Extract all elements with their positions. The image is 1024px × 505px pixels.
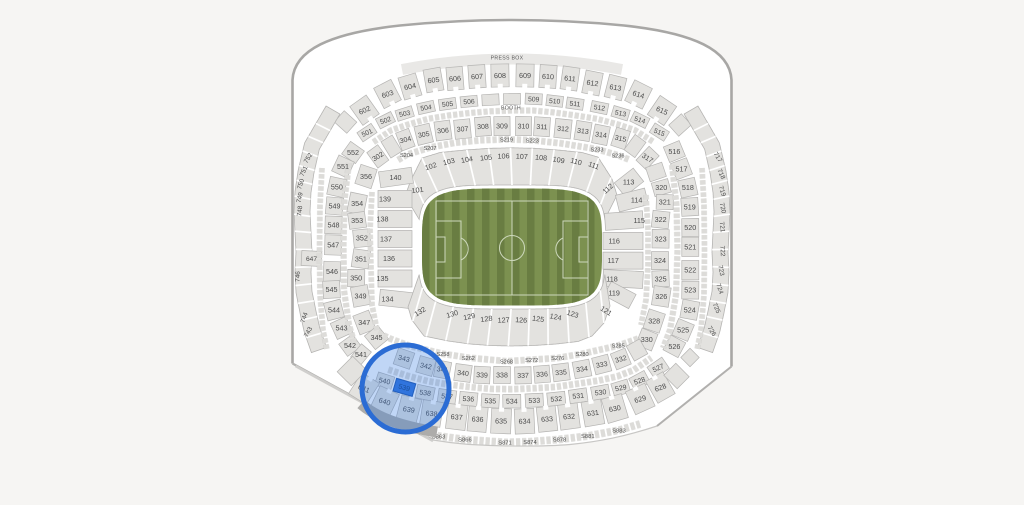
svg-text:S878: S878 [553, 438, 567, 444]
svg-text:335: 335 [555, 369, 567, 377]
svg-text:606: 606 [449, 74, 461, 84]
svg-text:345: 345 [371, 333, 383, 342]
svg-text:550: 550 [331, 183, 343, 192]
svg-text:S285: S285 [612, 344, 625, 350]
svg-text:108: 108 [535, 153, 548, 163]
svg-text:BOOTH: BOOTH [501, 106, 521, 112]
svg-text:S874: S874 [523, 440, 537, 446]
svg-text:516: 516 [668, 147, 680, 156]
svg-text:634: 634 [518, 417, 530, 426]
svg-text:105: 105 [480, 153, 493, 163]
svg-text:135: 135 [377, 274, 389, 283]
svg-text:339: 339 [476, 372, 488, 379]
svg-text:S207: S207 [423, 146, 436, 152]
svg-text:136: 136 [383, 254, 395, 263]
svg-text:511: 511 [569, 101, 581, 109]
svg-text:101: 101 [411, 185, 424, 196]
svg-text:137: 137 [380, 235, 392, 244]
svg-text:535: 535 [484, 398, 496, 405]
svg-text:338: 338 [496, 372, 508, 379]
svg-text:PRESS BOX: PRESS BOX [491, 55, 524, 61]
svg-text:321: 321 [659, 198, 671, 207]
svg-text:306: 306 [437, 127, 449, 135]
svg-text:722: 722 [718, 246, 726, 257]
svg-text:139: 139 [379, 195, 391, 204]
svg-text:328: 328 [648, 317, 660, 326]
svg-text:633: 633 [541, 414, 554, 424]
svg-text:533: 533 [528, 398, 540, 405]
svg-text:545: 545 [326, 285, 338, 294]
svg-text:746: 746 [294, 271, 302, 282]
svg-text:506: 506 [463, 99, 475, 107]
svg-text:526: 526 [668, 342, 680, 351]
svg-text:S268: S268 [500, 359, 513, 365]
svg-text:351: 351 [355, 254, 367, 263]
svg-text:541: 541 [355, 350, 367, 359]
svg-text:637: 637 [450, 412, 463, 422]
svg-text:546: 546 [326, 267, 338, 276]
svg-text:519: 519 [684, 202, 696, 211]
svg-text:610: 610 [542, 72, 554, 82]
svg-text:127: 127 [497, 315, 509, 325]
svg-text:325: 325 [655, 274, 667, 283]
svg-text:347: 347 [358, 318, 370, 327]
svg-text:530: 530 [594, 389, 607, 397]
svg-text:320: 320 [655, 183, 667, 192]
svg-text:308: 308 [477, 124, 489, 132]
svg-text:522: 522 [684, 266, 696, 275]
svg-text:S280: S280 [576, 352, 589, 358]
svg-text:138: 138 [377, 215, 389, 224]
svg-text:334: 334 [576, 366, 589, 374]
svg-text:118: 118 [606, 274, 617, 283]
svg-text:S866: S866 [458, 438, 472, 444]
svg-text:548: 548 [328, 221, 340, 230]
svg-text:106: 106 [497, 151, 509, 160]
svg-text:336: 336 [536, 371, 548, 379]
svg-text:323: 323 [655, 234, 667, 243]
svg-text:307: 307 [456, 126, 468, 134]
svg-text:608: 608 [494, 71, 506, 80]
svg-text:116: 116 [608, 237, 619, 246]
svg-text:107: 107 [516, 152, 528, 161]
svg-text:748: 748 [296, 205, 304, 217]
svg-text:309: 309 [496, 124, 508, 131]
svg-text:532: 532 [550, 396, 562, 404]
svg-text:115: 115 [633, 216, 644, 225]
svg-text:509: 509 [528, 96, 540, 103]
svg-text:S276: S276 [551, 356, 564, 362]
svg-text:S272: S272 [525, 358, 538, 364]
svg-text:312: 312 [557, 126, 569, 134]
svg-text:523: 523 [684, 286, 696, 295]
svg-text:S233: S233 [590, 147, 603, 153]
svg-text:605: 605 [427, 75, 440, 85]
svg-text:114: 114 [631, 195, 642, 204]
svg-text:518: 518 [682, 183, 694, 192]
svg-text:326: 326 [655, 292, 667, 301]
svg-text:721: 721 [718, 221, 726, 233]
svg-text:324: 324 [654, 256, 666, 265]
svg-text:126: 126 [515, 315, 527, 325]
svg-text:340: 340 [457, 370, 469, 378]
svg-text:117: 117 [607, 256, 618, 265]
svg-text:524: 524 [684, 305, 696, 314]
svg-text:510: 510 [549, 98, 561, 106]
svg-text:134: 134 [382, 295, 394, 304]
svg-text:520: 520 [684, 223, 696, 232]
svg-text:525: 525 [677, 325, 689, 334]
svg-text:544: 544 [328, 306, 340, 315]
svg-text:636: 636 [471, 414, 484, 424]
svg-text:S262: S262 [462, 356, 475, 362]
svg-text:113: 113 [623, 178, 634, 187]
svg-text:631: 631 [586, 408, 599, 418]
svg-text:119: 119 [608, 289, 619, 298]
svg-text:632: 632 [563, 411, 576, 421]
svg-text:534: 534 [506, 399, 518, 406]
svg-text:S236: S236 [611, 153, 624, 159]
svg-text:S883: S883 [612, 428, 626, 434]
svg-text:S881: S881 [581, 434, 595, 440]
svg-text:350: 350 [350, 274, 362, 283]
svg-text:551: 551 [337, 162, 349, 171]
svg-text:647: 647 [306, 256, 317, 263]
svg-text:521: 521 [684, 242, 696, 251]
svg-text:552: 552 [347, 148, 359, 157]
svg-text:609: 609 [519, 71, 531, 80]
svg-text:311: 311 [536, 124, 548, 132]
svg-text:337: 337 [517, 373, 529, 380]
svg-text:353: 353 [351, 216, 363, 225]
svg-text:543: 543 [336, 324, 348, 333]
svg-text:542: 542 [344, 341, 356, 350]
svg-text:547: 547 [327, 241, 339, 250]
svg-text:349: 349 [355, 291, 367, 300]
svg-text:125: 125 [532, 314, 545, 325]
svg-text:549: 549 [329, 202, 341, 211]
svg-text:612: 612 [586, 78, 599, 89]
svg-text:S219: S219 [500, 138, 513, 144]
svg-text:354: 354 [351, 199, 363, 208]
svg-text:310: 310 [518, 123, 530, 130]
svg-text:611: 611 [564, 73, 576, 83]
svg-text:635: 635 [495, 416, 507, 425]
svg-text:517: 517 [676, 164, 688, 173]
svg-text:356: 356 [360, 172, 372, 181]
svg-text:140: 140 [390, 173, 402, 182]
svg-text:S204: S204 [400, 153, 413, 159]
svg-text:505: 505 [442, 101, 454, 109]
svg-text:128: 128 [480, 314, 493, 325]
svg-text:313: 313 [577, 128, 589, 136]
svg-text:330: 330 [641, 335, 653, 344]
svg-text:352: 352 [356, 234, 368, 243]
svg-text:536: 536 [462, 396, 474, 404]
svg-text:531: 531 [572, 393, 584, 401]
svg-text:S223: S223 [526, 138, 539, 144]
svg-text:607: 607 [471, 72, 483, 82]
svg-text:322: 322 [655, 215, 667, 224]
svg-text:S871: S871 [498, 441, 512, 447]
